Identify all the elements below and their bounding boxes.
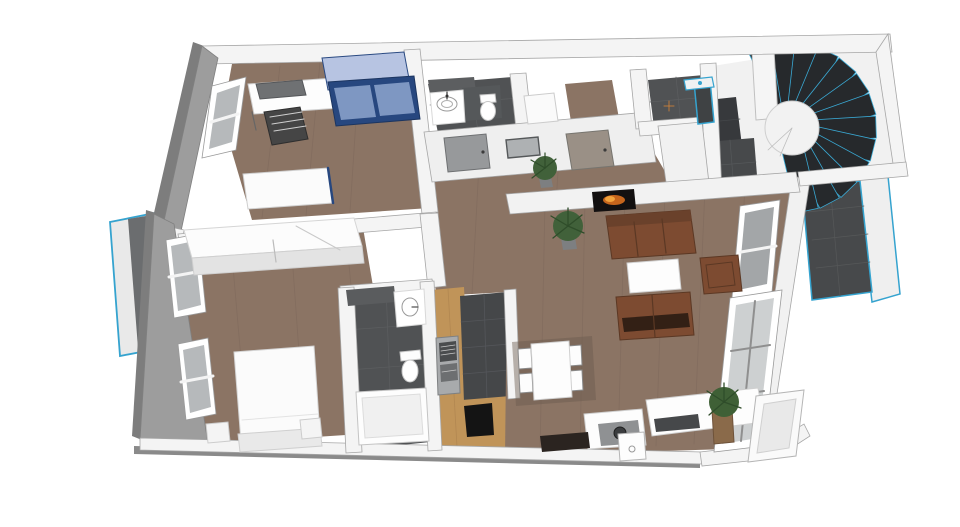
office-chair[interactable] bbox=[264, 107, 308, 145]
monitor bbox=[256, 80, 306, 99]
toilet-bowl[interactable] bbox=[481, 102, 496, 121]
white-bed-bedroom1[interactable] bbox=[243, 168, 333, 209]
induction-hob[interactable] bbox=[464, 403, 494, 437]
kitchen-tile-floor bbox=[460, 292, 510, 402]
dining-table[interactable] bbox=[531, 341, 572, 400]
blue-bed-mattress-right bbox=[374, 82, 415, 116]
nightstand-right[interactable] bbox=[300, 418, 322, 439]
floorplan-viewport bbox=[0, 0, 960, 527]
bathtub-inner bbox=[362, 394, 423, 438]
floorplan-canvas[interactable] bbox=[0, 0, 960, 527]
dining-chair[interactable] bbox=[519, 373, 533, 393]
wc-tap-dot bbox=[446, 95, 449, 98]
fireplace-flame-core bbox=[605, 196, 615, 202]
bathroom-toilet[interactable] bbox=[402, 360, 418, 382]
shower-selection-dot bbox=[698, 81, 702, 85]
nightstand-left[interactable] bbox=[206, 422, 230, 443]
hall-door-gray-handle bbox=[481, 150, 484, 153]
microwave bbox=[440, 363, 458, 382]
upper-hall-closet bbox=[524, 93, 558, 124]
hall-door-wood-handle bbox=[603, 148, 606, 151]
oven-door bbox=[439, 341, 457, 362]
blue-bed-mattress-left bbox=[334, 85, 376, 120]
coffee-table[interactable] bbox=[627, 259, 681, 293]
armchair[interactable] bbox=[700, 255, 742, 294]
hall-mirror bbox=[506, 137, 540, 158]
bathroom-toilet-back bbox=[400, 350, 421, 361]
dining-chair[interactable] bbox=[518, 348, 532, 369]
hall-door-wood[interactable] bbox=[566, 130, 614, 170]
